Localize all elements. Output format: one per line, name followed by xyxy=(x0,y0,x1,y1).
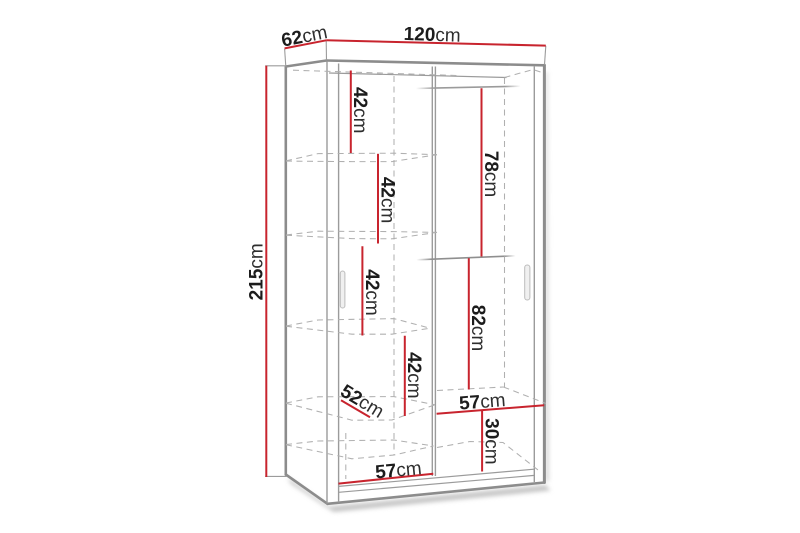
svg-text:82cm: 82cm xyxy=(467,305,488,351)
svg-text:120cm: 120cm xyxy=(403,24,461,47)
svg-text:42cm: 42cm xyxy=(361,269,382,315)
svg-text:30cm: 30cm xyxy=(481,418,502,464)
svg-text:57cm: 57cm xyxy=(374,458,422,483)
svg-text:42cm: 42cm xyxy=(403,352,424,398)
svg-text:42cm: 42cm xyxy=(349,87,370,133)
svg-text:42cm: 42cm xyxy=(376,177,397,223)
svg-text:215cm: 215cm xyxy=(247,243,268,300)
svg-text:57cm: 57cm xyxy=(458,390,506,415)
svg-text:78cm: 78cm xyxy=(480,151,501,197)
